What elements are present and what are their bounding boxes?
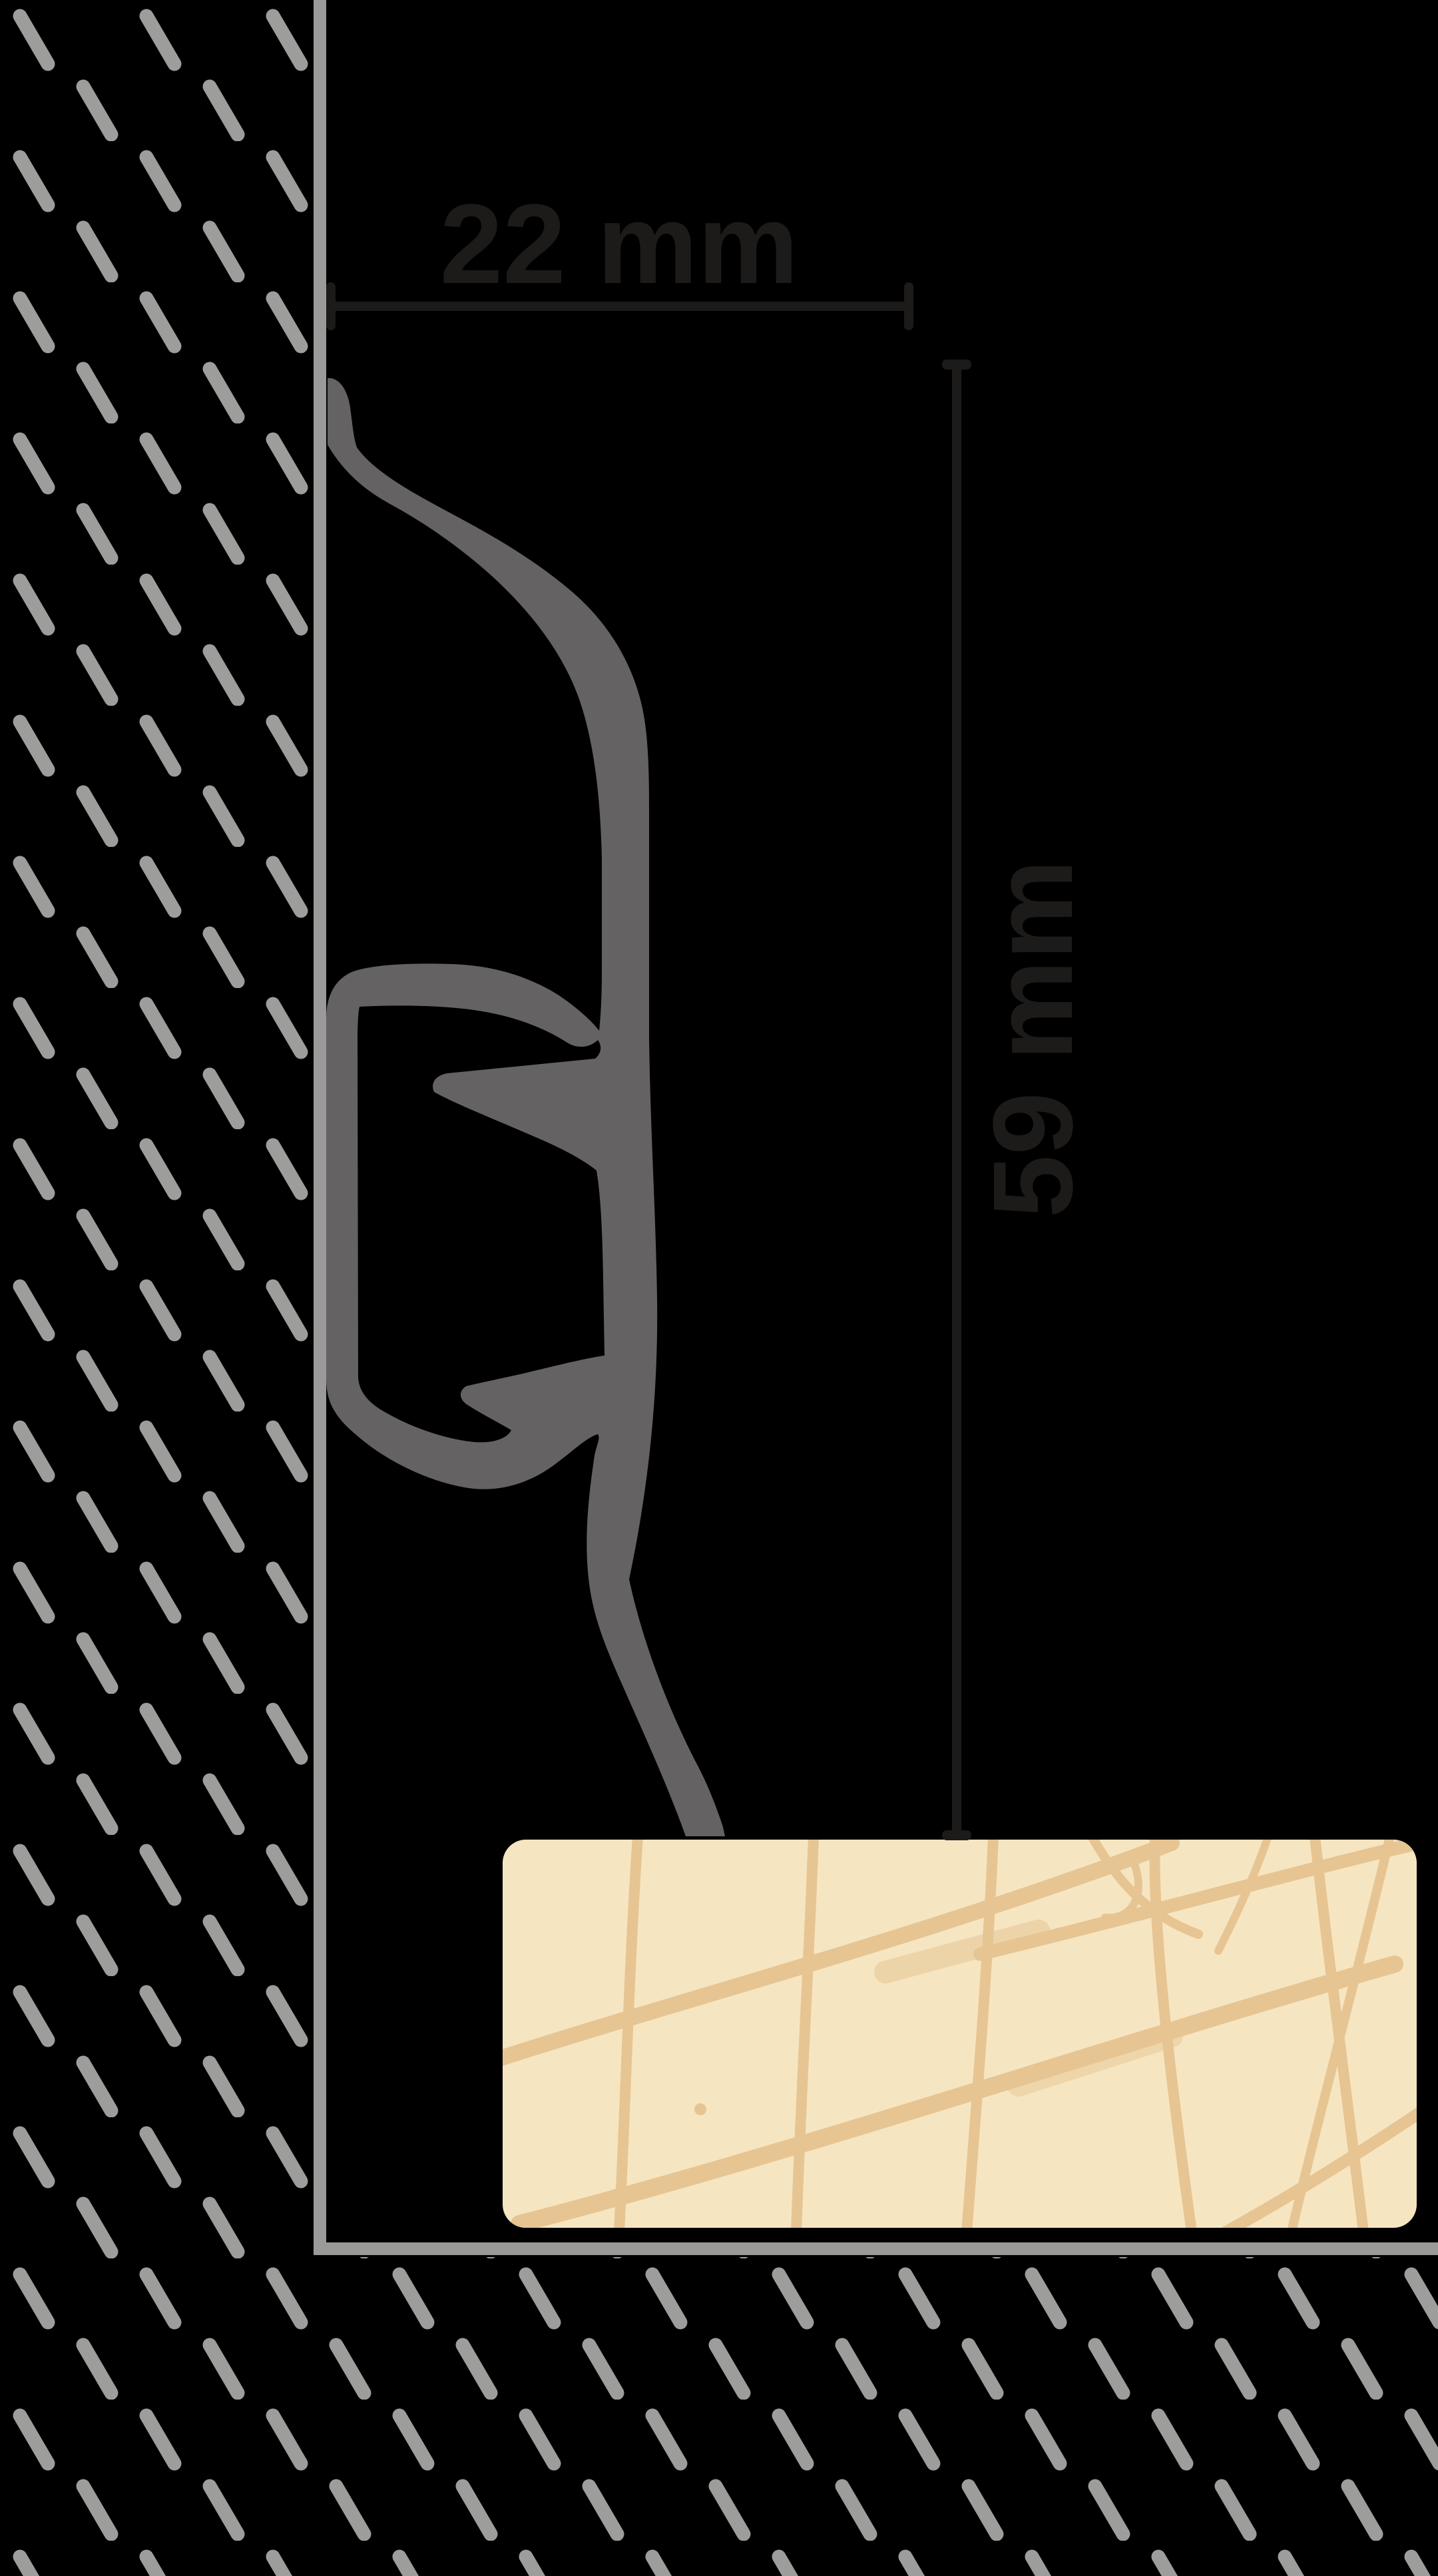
subfloor-hatch-area: [326, 2257, 1438, 2576]
height-dimension: 59 mm: [942, 360, 1096, 1840]
height-dimension-tick-bottom: [942, 1830, 971, 1840]
wall-hatch-area: [0, 0, 314, 2576]
height-dimension-line: [952, 364, 961, 1836]
width-dimension-label: 22 mm: [440, 181, 799, 308]
floor-board: [493, 1836, 1425, 2232]
width-dimension: 22 mm: [326, 181, 913, 330]
diagram-canvas: 22 mm 59 mm: [0, 0, 1438, 2576]
floor-board-body: [503, 1840, 1417, 2228]
floor-base-line: [314, 2242, 1438, 2255]
skirting-profile-diagram: 22 mm 59 mm: [0, 0, 1438, 2576]
width-dimension-tick-left: [326, 282, 336, 330]
width-dimension-tick-right: [904, 282, 913, 330]
skirting-profile: [326, 378, 725, 1836]
height-dimension-tick-top: [942, 360, 971, 370]
wall-surface-line: [314, 0, 326, 2255]
height-dimension-label: 59 mm: [970, 860, 1096, 1218]
